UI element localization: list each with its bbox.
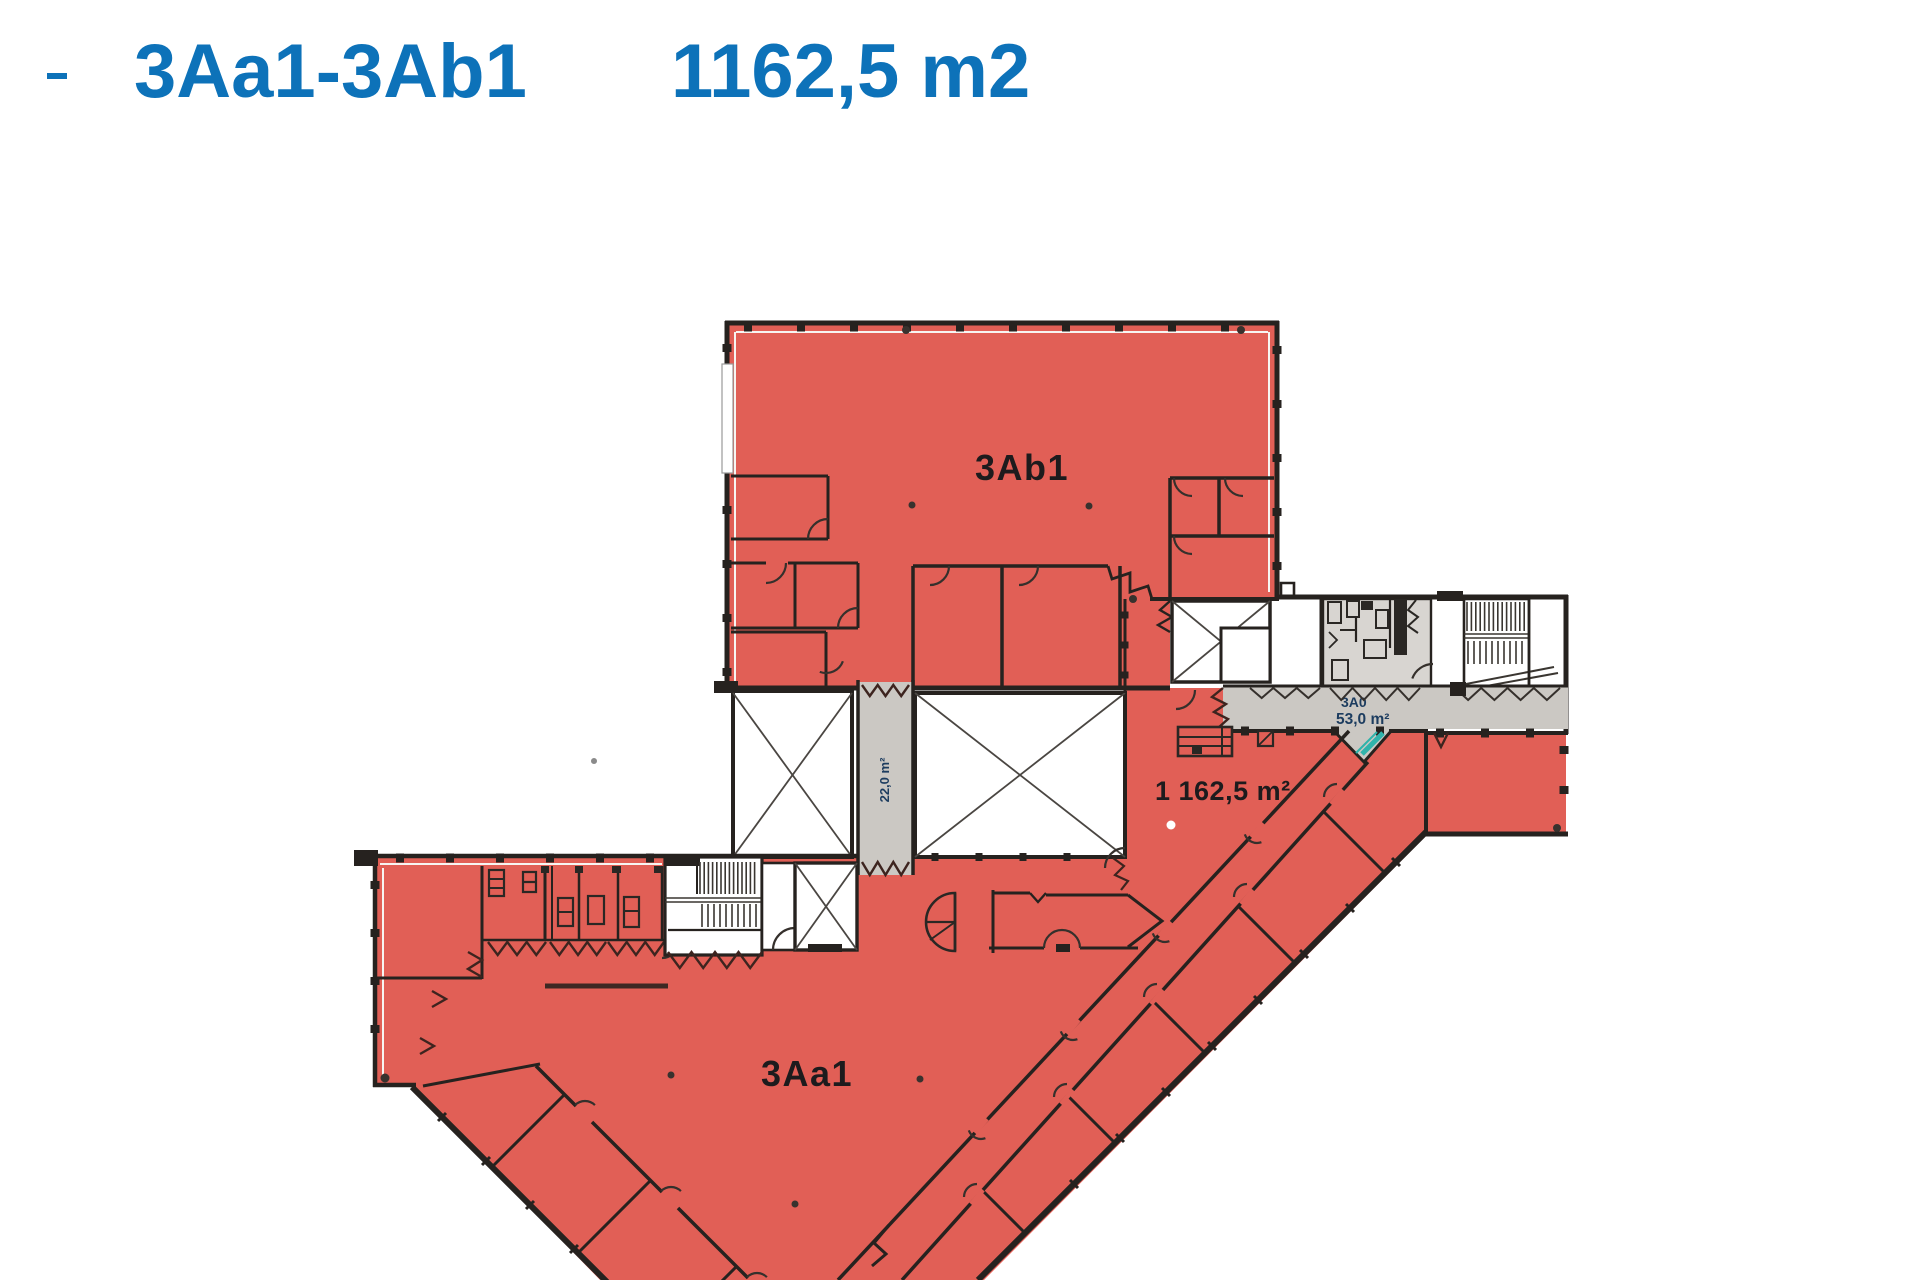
svg-text:1162,5 m2: 1162,5 m2 [671, 29, 1030, 114]
svg-text:22,0 m²: 22,0 m² [877, 757, 892, 802]
svg-text:3Aa1: 3Aa1 [761, 1053, 853, 1094]
svg-text:53,0 m²: 53,0 m² [1336, 711, 1389, 728]
svg-text:3Aa1-3Ab1: 3Aa1-3Ab1 [134, 29, 527, 114]
svg-text:3Ab1: 3Ab1 [975, 447, 1069, 488]
svg-text:1 162,5 m²: 1 162,5 m² [1155, 776, 1291, 806]
